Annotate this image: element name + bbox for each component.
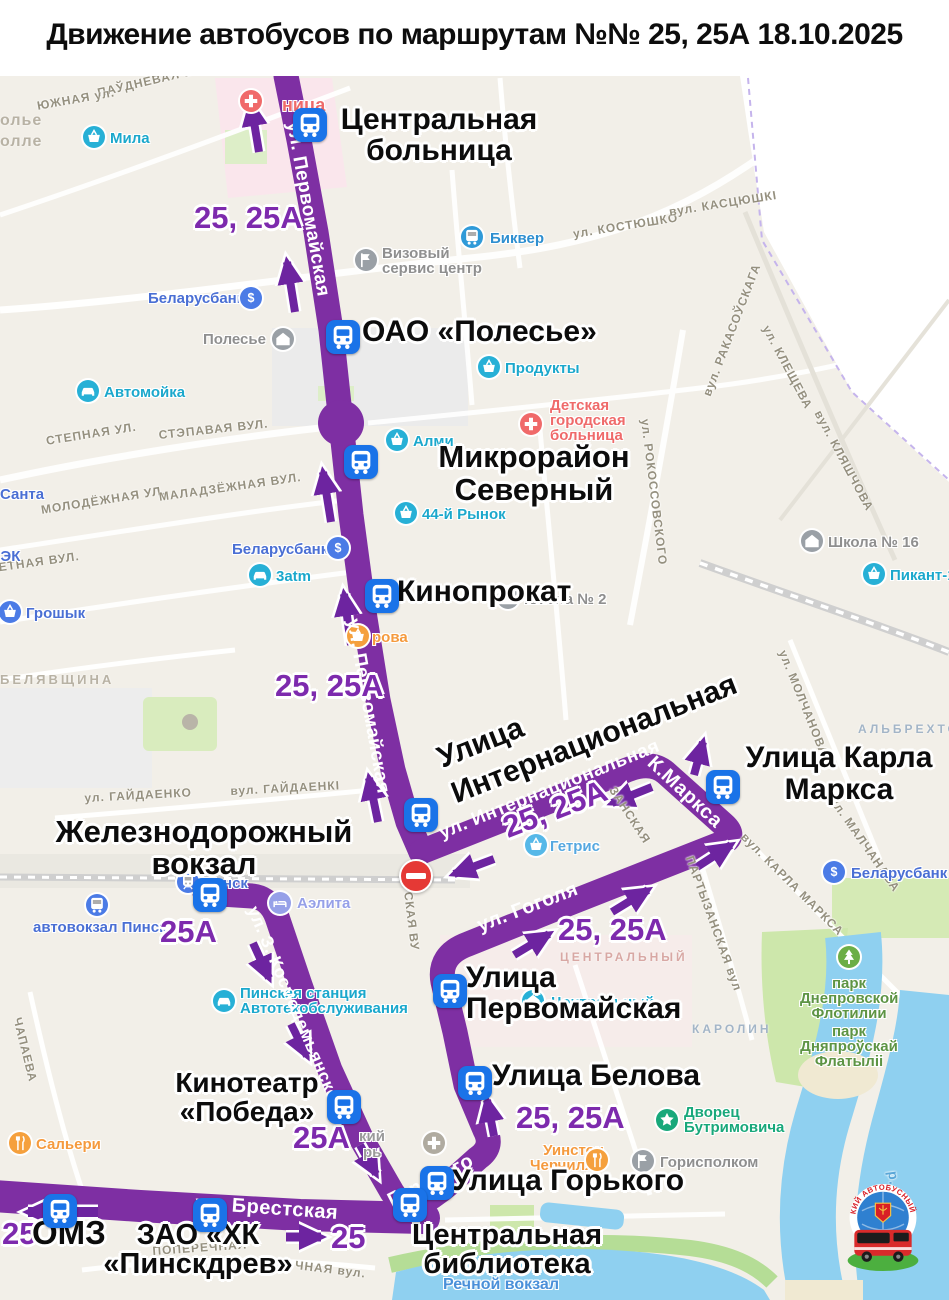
- district-polesye-1: олье: [0, 112, 42, 130]
- bus-stop-icon-railway-station: [193, 878, 227, 912]
- car-icon: [77, 380, 99, 402]
- shop-icon: [863, 563, 885, 585]
- monument-icon: [182, 714, 198, 730]
- shop-icon: [83, 126, 105, 148]
- bus-stop-icon-pobeda: [327, 1090, 361, 1124]
- stop-label-pobeda: Кинотеатр«Победа»: [154, 1068, 340, 1126]
- school-icon: [801, 530, 823, 552]
- route-label-25-25a-top: 25, 25А: [194, 200, 303, 236]
- base-map: $: [0, 0, 949, 1300]
- bus-stop-icon-pervomayskaya: [433, 974, 467, 1008]
- bus-stop-icon-karla-marksa: [706, 770, 740, 804]
- car-icon: [249, 564, 271, 586]
- stop-label-central-hospital: Центральнаябольница: [328, 104, 550, 166]
- bank-icon: [327, 537, 349, 559]
- route-label-25-east: 25: [331, 1220, 365, 1256]
- shop-icon: [478, 356, 500, 378]
- flag-icon: [355, 249, 377, 271]
- stop-label-oao-polesye: ОАО «Полесье»: [362, 316, 597, 347]
- stop-label-severny: МикрорайонСеверный: [375, 440, 693, 506]
- hospital-cross-icon: [520, 413, 542, 435]
- route-label-25a-vokzal: 25А: [160, 914, 217, 950]
- tree-icon: [838, 946, 860, 968]
- bus-stop-icon-oao-polesye: [326, 320, 360, 354]
- roundabout: [318, 400, 364, 446]
- stop-label-railway-station: Железнодорожныйвокзал: [48, 816, 360, 880]
- bus-stop-icon-severny: [344, 445, 378, 479]
- stop-label-pervomayskaya: УлицаПервомайская: [466, 962, 681, 1024]
- bus-stop-icon-omz: [43, 1194, 77, 1228]
- shop-icon: [0, 601, 21, 623]
- stop-label-gorkogo: Улица Горького: [452, 1165, 684, 1196]
- header: Движение автобусов по маршрутам №№ 25, 2…: [0, 0, 949, 76]
- bus-poi-icon: [86, 894, 108, 916]
- hospital-cross-icon: [240, 90, 262, 112]
- star-icon: [656, 1109, 678, 1131]
- page-title: Движение автобусов по маршрутам №№ 25, 2…: [0, 0, 949, 52]
- route-label-25-25a-gogolya: 25, 25А: [558, 912, 667, 948]
- bank-icon: [823, 861, 845, 883]
- bus-stop-icon-internatsionalnaya: [404, 798, 438, 832]
- route-map-poster: $: [0, 0, 949, 1300]
- bus-poi-icon: [461, 226, 483, 248]
- bus-stop-icon-central-hospital: [293, 108, 327, 142]
- church-icon: [423, 1132, 445, 1154]
- district-polesye-2: олле: [0, 133, 42, 151]
- bus-stop-icon-library: [393, 1188, 427, 1222]
- mall-icon: [272, 328, 294, 350]
- district-belyavshchina: БЕЛЯВЩИНА: [0, 672, 114, 687]
- stop-label-library: Центральнаябиблиотека: [393, 1221, 621, 1279]
- car-icon: [213, 990, 235, 1012]
- restaurant-icon: [9, 1132, 31, 1154]
- stop-label-kinoprokat: Кинопрокат: [397, 576, 571, 607]
- bank-icon: [240, 287, 262, 309]
- route-label-25-25a-mid: 25, 25А: [275, 668, 384, 704]
- stop-label-karla-marksa: Улица КарлаМаркса: [726, 742, 949, 806]
- district-albrekhtovo: АЛЬБРЕХТОВО: [858, 722, 949, 736]
- bus-stop-icon-kinoprokat: [365, 579, 399, 613]
- route-label-25-25a-belova: 25, 25А: [516, 1100, 625, 1136]
- bed-icon: [269, 892, 291, 914]
- no-entry-sign: [399, 859, 433, 893]
- bus-park-logo: ПИНСКИЙ АВТОБУСНЫЙ ПАРК: [840, 1180, 926, 1276]
- bus-stop-icon-pinskdrev: [193, 1198, 227, 1232]
- district-karolin: КАРОЛИН: [692, 1022, 772, 1036]
- bus-stop-icon-belova: [458, 1066, 492, 1100]
- stop-label-belova: Улица Белова: [492, 1060, 700, 1091]
